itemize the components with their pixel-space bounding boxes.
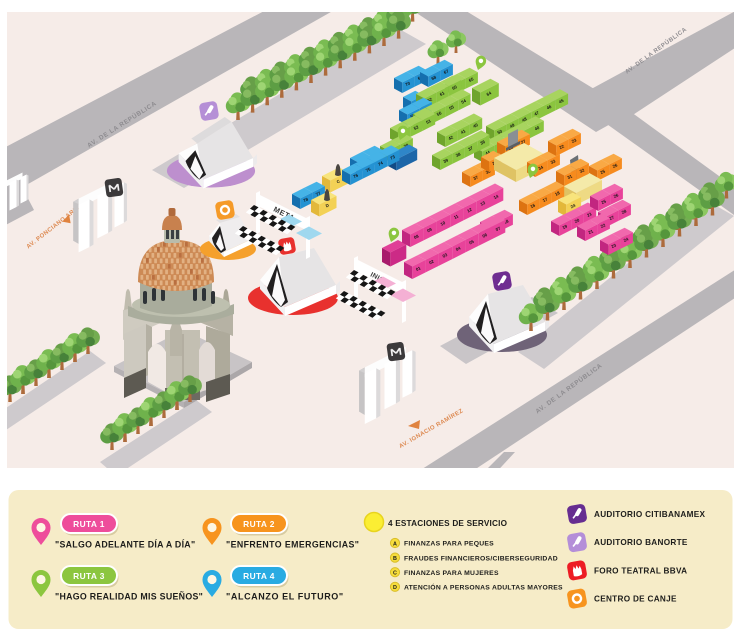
svg-text:RUTA 2: RUTA 2 [243,519,275,529]
svg-text:RUTA 4: RUTA 4 [243,571,275,581]
svg-text:"SALGO ADELANTE DÍA A DÍA": "SALGO ADELANTE DÍA A DÍA" [55,540,195,550]
svg-text:RUTA 1: RUTA 1 [73,519,105,529]
svg-text:AUDITORIO BANORTE: AUDITORIO BANORTE [594,538,688,547]
svg-text:"ALCANZO EL FUTURO": "ALCANZO EL FUTURO" [226,592,344,602]
svg-text:FRAUDES FINANCIEROS/CIBERSEGUR: FRAUDES FINANCIEROS/CIBERSEGURIDAD [404,555,558,562]
svg-text:"HAGO REALIDAD MIS SUEÑOS": "HAGO REALIDAD MIS SUEÑOS" [55,592,203,602]
svg-text:"ENFRENTO EMERGENCIAS": "ENFRENTO EMERGENCIAS" [226,540,359,550]
svg-text:RUTA 3: RUTA 3 [73,571,105,581]
svg-text:ATENCIÓN A PERSONAS ADULTAS MA: ATENCIÓN A PERSONAS ADULTAS MAYORES [404,583,563,592]
svg-text:FORO TEATRAL BBVA: FORO TEATRAL BBVA [594,566,687,575]
svg-text:B: B [393,556,397,562]
svg-text:CENTRO DE CANJE: CENTRO DE CANJE [594,595,677,604]
svg-text:C: C [393,571,397,577]
svg-text:FINANZAS PARA PEQUES: FINANZAS PARA PEQUES [404,541,494,548]
svg-text:AUDITORIO CITIBANAMEX: AUDITORIO CITIBANAMEX [594,510,705,519]
svg-text:FINANZAS PARA MUJERES: FINANZAS PARA MUJERES [404,570,499,577]
svg-text:D: D [393,585,397,591]
svg-text:A: A [393,541,397,547]
svg-text:4 ESTACIONES DE SERVICIO: 4 ESTACIONES DE SERVICIO [388,519,508,528]
